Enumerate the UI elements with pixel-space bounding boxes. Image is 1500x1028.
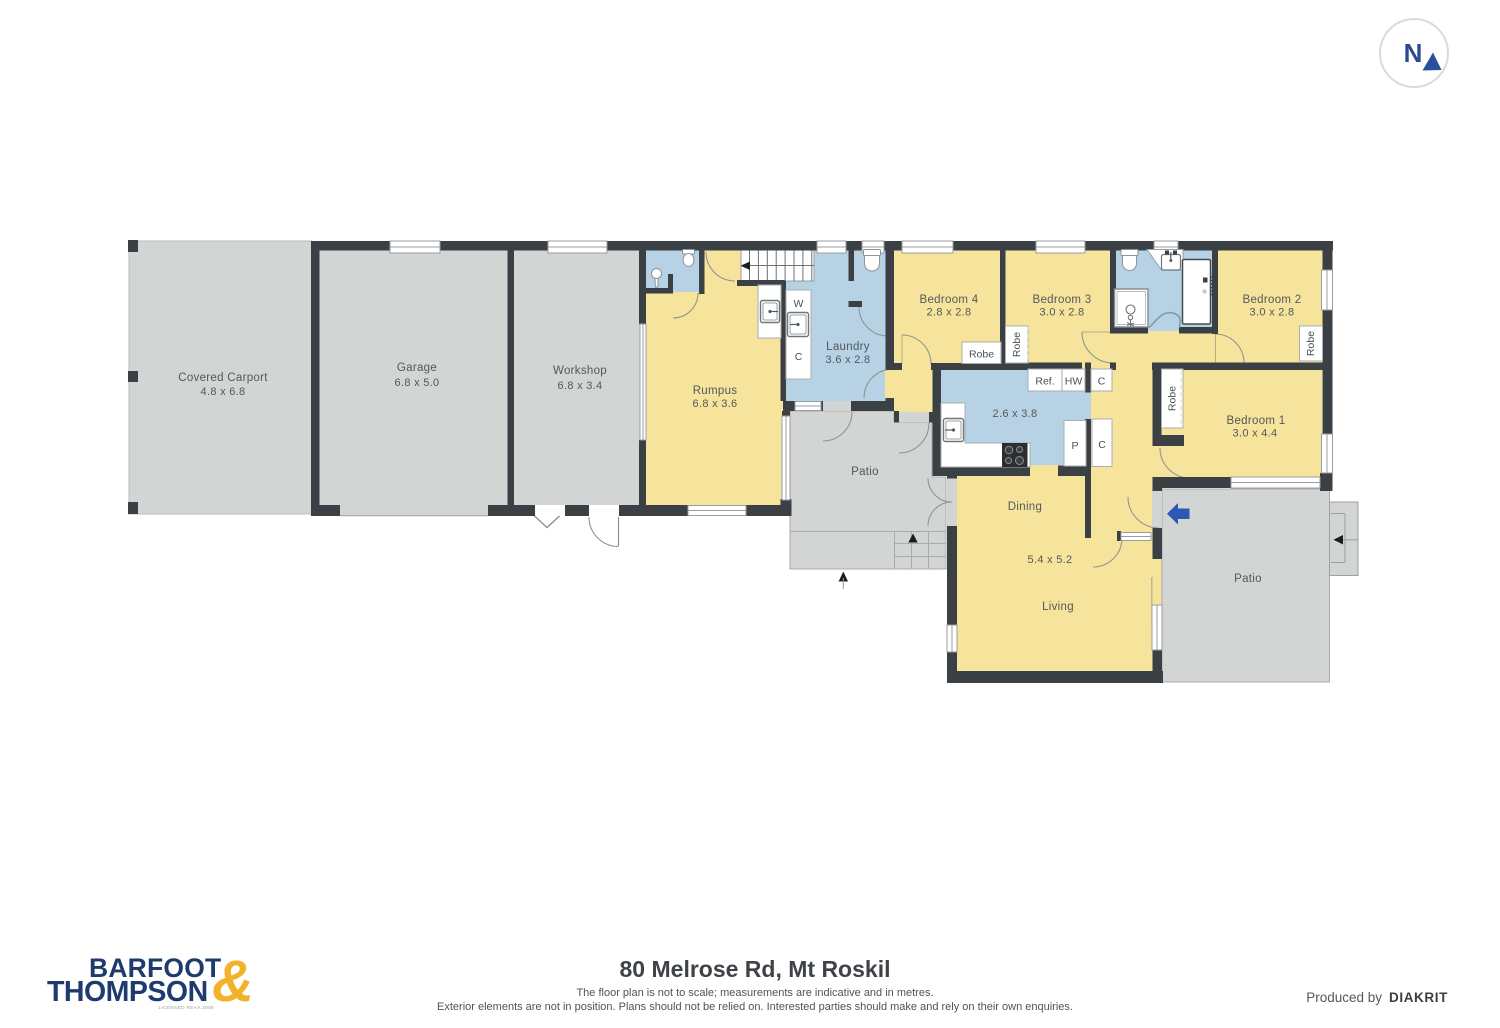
svg-text:Robe: Robe xyxy=(1011,332,1023,357)
svg-text:3.0 x 4.4: 3.0 x 4.4 xyxy=(1233,428,1278,440)
svg-text:Robe: Robe xyxy=(1305,331,1317,356)
svg-text:3.0 x 2.8: 3.0 x 2.8 xyxy=(1250,307,1295,319)
svg-text:W: W xyxy=(794,298,804,310)
svg-text:N: N xyxy=(1404,38,1423,68)
svg-text:Dining: Dining xyxy=(1008,501,1042,513)
svg-text:C: C xyxy=(1098,439,1106,451)
svg-text:3.6 x 2.8: 3.6 x 2.8 xyxy=(826,354,871,366)
svg-text:2.6 x 3.8: 2.6 x 3.8 xyxy=(993,408,1038,420)
svg-text:Bedroom 2: Bedroom 2 xyxy=(1243,294,1302,306)
svg-text:Ref.: Ref. xyxy=(1035,376,1054,388)
svg-text:The floor plan is not to scale: The floor plan is not to scale; measurem… xyxy=(576,987,933,999)
svg-text:DIAKRIT: DIAKRIT xyxy=(1389,990,1448,1005)
svg-text:C: C xyxy=(795,351,803,363)
svg-text:Rumpus: Rumpus xyxy=(693,385,738,397)
svg-text:Patio: Patio xyxy=(851,466,879,478)
svg-text:Bedroom 3: Bedroom 3 xyxy=(1033,294,1092,306)
svg-text:Laundry: Laundry xyxy=(826,341,870,353)
svg-text:80 Melrose Rd, Mt Roskil: 80 Melrose Rd, Mt Roskil xyxy=(620,956,891,982)
svg-text:LICENSED REAA 2008: LICENSED REAA 2008 xyxy=(158,1005,214,1011)
svg-text:Workshop: Workshop xyxy=(553,365,607,377)
svg-text:Living: Living xyxy=(1042,601,1074,613)
svg-text:2.8 x 2.8: 2.8 x 2.8 xyxy=(927,307,972,319)
svg-text:Bedroom 1: Bedroom 1 xyxy=(1227,415,1286,427)
svg-text:4.8 x 6.8: 4.8 x 6.8 xyxy=(201,386,246,398)
svg-text:5.4 x 5.2: 5.4 x 5.2 xyxy=(1028,554,1073,566)
svg-text:Bedroom 4: Bedroom 4 xyxy=(920,294,979,306)
svg-text:3.0 x 2.8: 3.0 x 2.8 xyxy=(1040,307,1085,319)
svg-text:&: & xyxy=(212,949,254,1014)
svg-text:6.8 x 5.0: 6.8 x 5.0 xyxy=(395,377,440,389)
svg-text:Garage: Garage xyxy=(397,362,437,374)
svg-text:HW: HW xyxy=(1065,376,1083,388)
svg-text:Patio: Patio xyxy=(1234,573,1262,585)
svg-text:Robe: Robe xyxy=(969,349,994,361)
svg-text:C: C xyxy=(1098,376,1106,388)
svg-text:Robe: Robe xyxy=(1167,386,1179,411)
svg-text:6.8 x 3.6: 6.8 x 3.6 xyxy=(693,398,738,410)
svg-text:Produced by: Produced by xyxy=(1306,990,1382,1005)
svg-text:Covered Carport: Covered Carport xyxy=(178,372,268,384)
svg-text:Exterior elements are not in p: Exterior elements are not in position. P… xyxy=(437,1001,1073,1013)
svg-text:P: P xyxy=(1071,440,1078,452)
svg-text:THOMPSON: THOMPSON xyxy=(47,976,208,1008)
svg-text:6.8 x 3.4: 6.8 x 3.4 xyxy=(558,380,603,392)
